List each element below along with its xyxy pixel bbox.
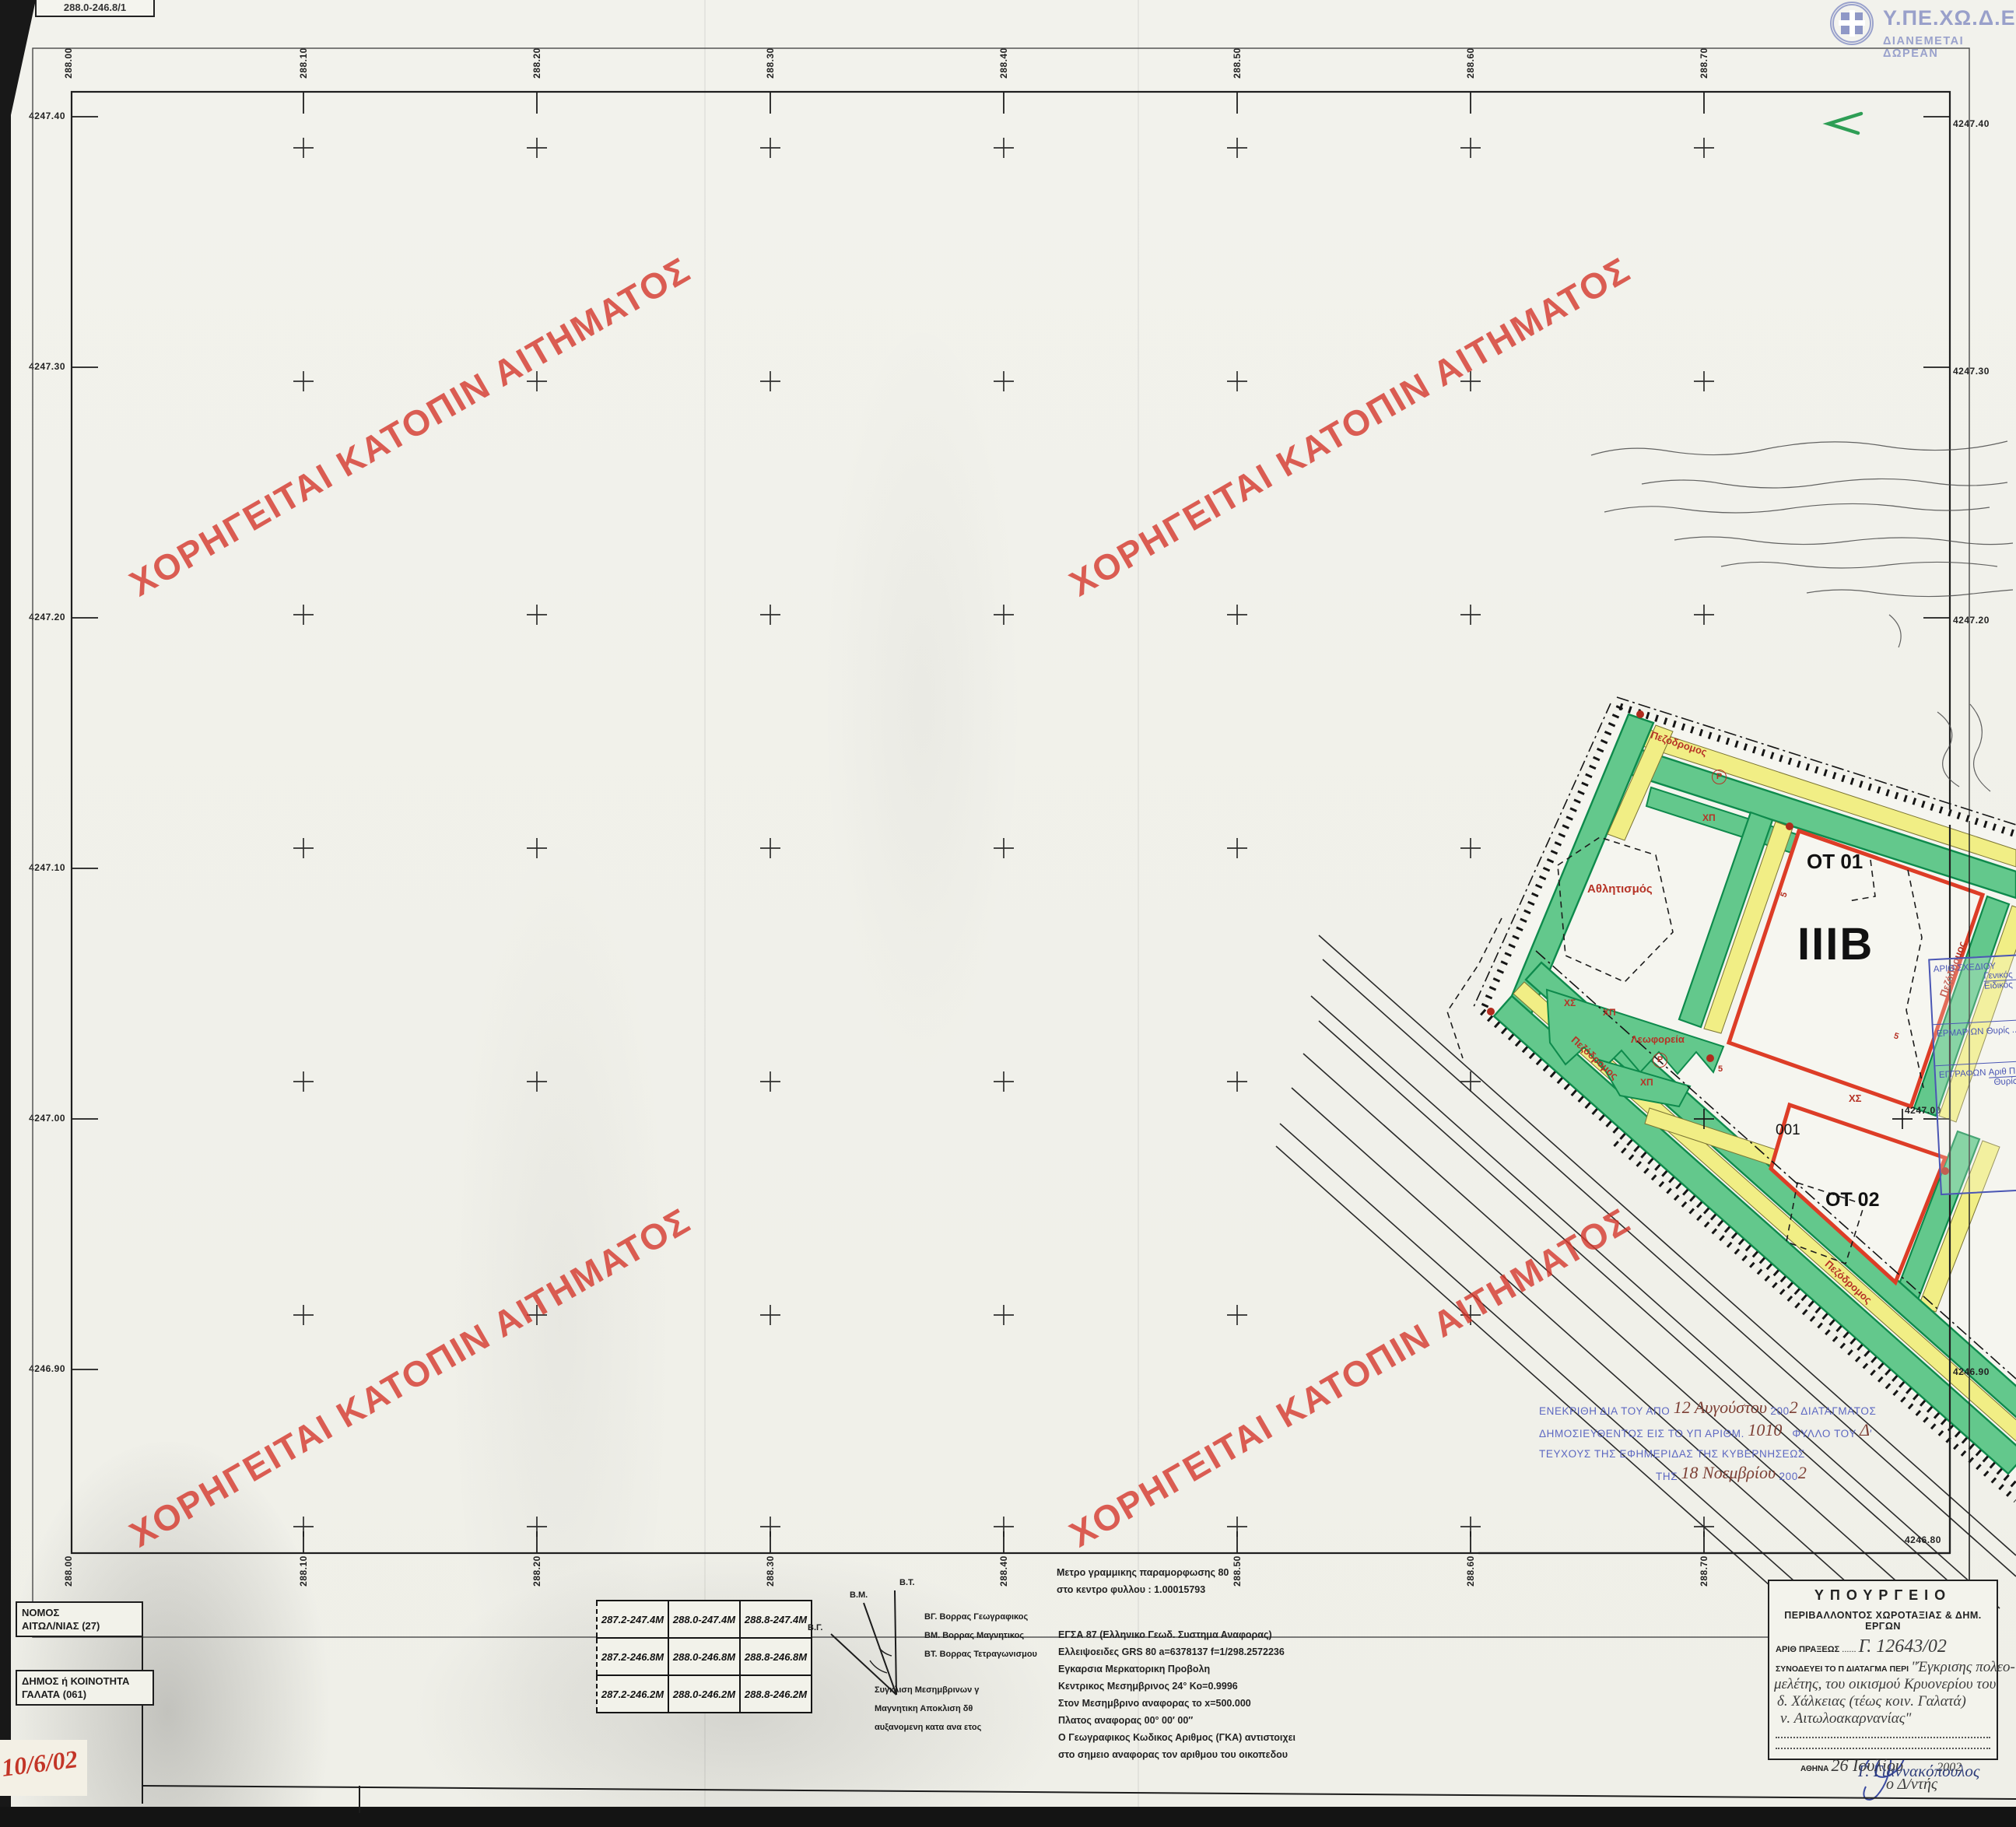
north-bg-label: Β.Γ.: [808, 1623, 822, 1632]
handwritten-praxis-number: Γ. 12643/02: [1859, 1636, 1947, 1657]
distortion-note-line: στο κεντρο φυλλου : 1.00015793: [1057, 1584, 1205, 1595]
declination-note-line: Συγκλιση Μεσημβρινων γ: [875, 1685, 979, 1695]
sheet-cell: 288.0-246.8Μ: [668, 1638, 740, 1675]
sheet-cell: 288.8-246.2Μ: [740, 1675, 812, 1713]
ministry-subtitle: ΠΕΡΙΒΑΛΛΟΝΤΟΣ ΧΩΡΟΤΑΞΙΑΣ & ΔΗΜ. ΕΡΓΩΝ: [1769, 1610, 1997, 1632]
dimos-box: ΔΗΜΟΣ ή ΚΟΙΝΟΤΗΤΑ ΓΑΛΑΤΑ (061): [16, 1670, 154, 1706]
sheet-cell: 288.8-246.8Μ: [740, 1638, 812, 1675]
projection-line: Εγκαρσια Μερκατορικη Προβολη: [1058, 1664, 1210, 1674]
declination-note-line: Μαγνητικη Αποκλιση δθ: [875, 1704, 973, 1713]
sheet-cell: 287.2-247.4Μ: [597, 1601, 668, 1638]
north-bt-label: Β.Τ.: [899, 1578, 915, 1587]
north-bm-label: Β.Μ.: [850, 1590, 868, 1600]
projection-line: Ελλειψοειδες GRS 80 a=6378137 f=1/298.25…: [1058, 1646, 1285, 1657]
approval-line-2: ΔΗΜΟΣΙΕΥΘΕΝΤΟΣ ΕΙΣ ΤΟ ΥΠ ΑΡΙΘΜ. 1010 ΦΥΛ…: [1539, 1422, 1876, 1444]
handwritten-gazette-number: 1010: [1748, 1420, 1782, 1440]
approval-line-4: ΤΗΣ 18 Νοεμβρίου 2002: [1539, 1464, 1876, 1487]
sheet-index-table: 287.2-247.4Μ 288.0-247.4Μ 288.8-247.4Μ 2…: [596, 1600, 812, 1713]
praxis-row: ΑΡΙΘ ΠΡΑΞΕΩΣ ...... Γ. 12643/02: [1776, 1636, 1997, 1657]
decree-row: ΣΥΝΟΔΕΥΕΙ ΤΟ Π ΔΙΑΤΑΓΜΑ ΠΕΡΙ "Έγκρισης π…: [1776, 1659, 1997, 1676]
ministry-stamp-box: ΥΠΟΥΡΓΕΙΟ ΠΕΡΙΒΑΛΛΟΝΤΟΣ ΧΩΡΟΤΑΞΙΑΣ & ΔΗΜ…: [1768, 1580, 1998, 1760]
signature-name: Γ. Γιαννακόπουλος: [1858, 1762, 1979, 1781]
north-legend-line: ΒΤ. Βορρας Τετραγωνισμου: [924, 1650, 1037, 1659]
handwritten-date: 18 Νοεμβρίου: [1681, 1463, 1776, 1482]
sheet-cell: 287.2-246.2Μ: [597, 1675, 668, 1713]
projection-line: Στον Μεσημβρινο αναφορας το x=500.000: [1058, 1698, 1251, 1709]
table-row: 287.2-247.4Μ 288.0-247.4Μ 288.8-247.4Μ: [597, 1601, 812, 1638]
north-legend-line: ΒΓ. Βορρας Γεωγραφικος: [924, 1612, 1028, 1622]
projection-line: ΕΓΣΑ 87 (Ελληνικο Γεωδ. Συστημα Αναφορας…: [1058, 1629, 1272, 1640]
handwritten-decree-1: "Έγκρισης πολεο-: [1911, 1659, 2015, 1675]
ministry-title: ΥΠΟΥΡΓΕΙΟ: [1769, 1587, 1997, 1604]
approval-stamp: ΕΝΕΚΡΙΘΗ ΔΙΑ ΤΟΥ ΑΠΟ 12 Αυγούστου 2002 Δ…: [1539, 1399, 1876, 1487]
sheet-cell: 288.8-247.4Μ: [740, 1601, 812, 1638]
sheet-cell: 287.2-246.8Μ: [597, 1638, 668, 1675]
projection-line: Πλατος αναφορας 00° 00′ 00″: [1058, 1715, 1193, 1726]
filing-row-documents: ΕΓΓΡΑΦΩΝ Αριθ Πρ Θυρίς ....: [1935, 1060, 2016, 1128]
filing-row-cabinet: ΕΡΜΑΡΙΩΝ Θυρίς ....: [1934, 1019, 2016, 1066]
dotted-rule: [1776, 1727, 1990, 1738]
handwritten-decree-4: ν. Αιτωλοακαρνανίας": [1780, 1710, 1997, 1727]
approval-line-1: ΕΝΕΚΡΙΘΗ ΔΙΑ ΤΟΥ ΑΠΟ 12 Αυγούστου 2002 Δ…: [1539, 1399, 1876, 1422]
distortion-note-line: Μετρο γραμμικης παραμορφωσης 80: [1057, 1567, 1229, 1578]
handwritten-decree-3: δ. Χάλκειας (τέως κοιν. Γαλατά): [1777, 1693, 1997, 1710]
sheet-cell: 288.0-246.2Μ: [668, 1675, 740, 1713]
dotted-rule: [1776, 1738, 1990, 1749]
nomos-box: ΝΟΜΟΣ ΑΙΤΩΛ/ΝΙΑΣ (27): [16, 1601, 143, 1637]
table-row: 287.2-246.2Μ 288.0-246.2Μ 288.8-246.2Μ: [597, 1675, 812, 1713]
north-legend-line: ΒΜ. Βορρας Μαγνητικος: [924, 1631, 1024, 1640]
projection-line: Κεντρικος Μεσημβρινος 24° Κο=0.9996: [1058, 1681, 1238, 1692]
filing-stamp: ΑΡΙΘ ΣΧΕΔΙΟΥ Γενικός Ειδικός ... ΕΡΜΑΡΙΩ…: [1928, 952, 2016, 1195]
handwritten-decree-2: μελέτης, του οικισμού Κρυονερίου του: [1774, 1676, 1997, 1693]
projection-line: Ο Γεωγραφικος Κωδικος Αριθμος (ΓΚΑ) αντι…: [1058, 1732, 1295, 1743]
table-row: 287.2-246.8Μ 288.0-246.8Μ 288.8-246.8Μ: [597, 1638, 812, 1675]
sheet-cell: 288.0-247.4Μ: [668, 1601, 740, 1638]
bottom-strip-lines: [0, 0, 2016, 1827]
filing-row-plan-number: ΑΡΙΘ ΣΧΕΔΙΟΥ Γενικός Ειδικός ...: [1930, 954, 2016, 1025]
declination-note-line: αυξανομενη κατα ανα ετος: [875, 1723, 981, 1732]
approval-line-3: ΤΕΥΧΟΥΣ ΤΗΣ ΕΦΗΜΕΡΙΔΑΣ ΤΗΣ ΚΥΒΕΡΝΗΣΕΩΣ: [1539, 1444, 1876, 1464]
projection-line: στο σημειο αναφορας τον αριθμου του οικο…: [1058, 1749, 1288, 1760]
handwritten-date: 12 Αυγούστου: [1674, 1397, 1767, 1417]
